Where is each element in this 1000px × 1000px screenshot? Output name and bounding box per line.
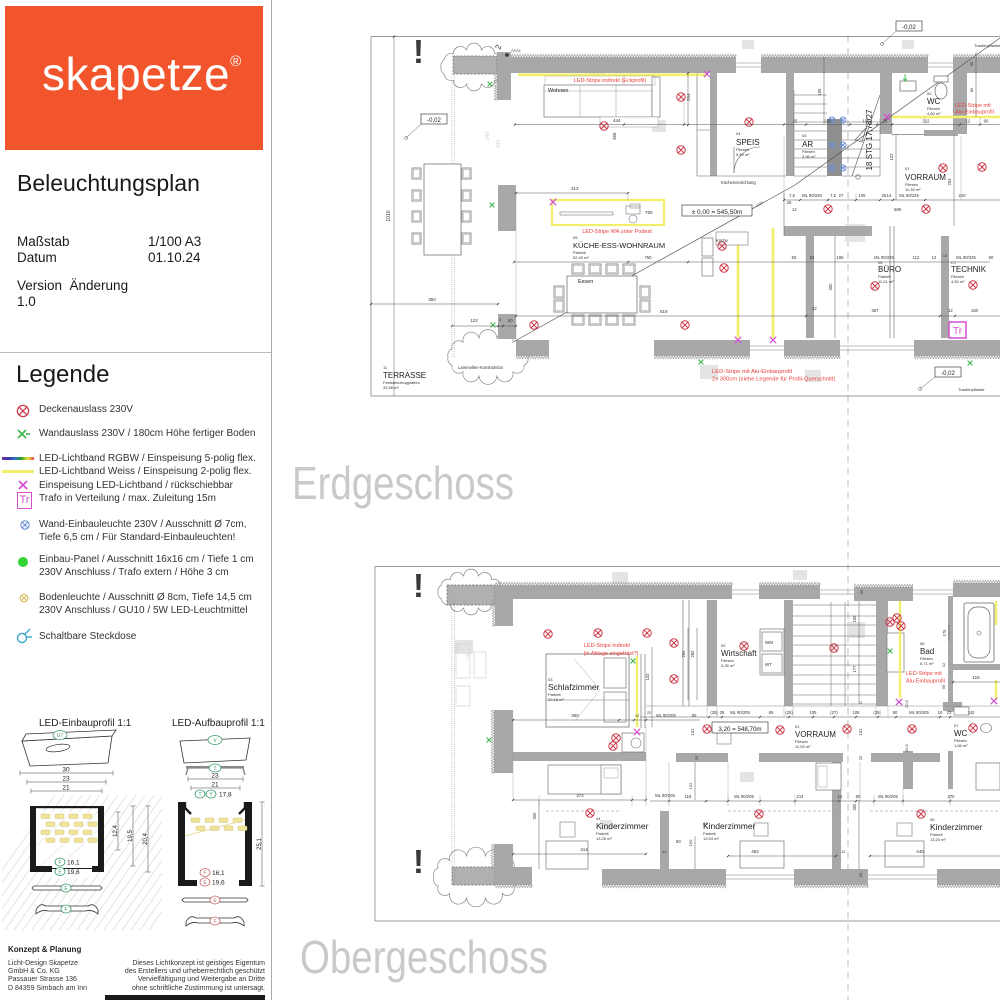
svg-text:04: 04 <box>736 131 741 136</box>
svg-text:25: 25 <box>858 755 863 760</box>
svg-text:Schlafzimmer: Schlafzimmer <box>548 682 600 692</box>
svg-text:!: ! <box>413 843 424 880</box>
svg-text:!: ! <box>413 33 424 70</box>
svg-text:LED-Stripe indirekt (Eckprofil: LED-Stripe indirekt (Eckprofil) <box>574 78 647 84</box>
svg-text:ML 90/225: ML 90/225 <box>956 255 976 260</box>
svg-text:Küche: Küche <box>716 238 729 243</box>
svg-text:(25|: (25| <box>873 710 880 715</box>
svg-text:TECHNIK: TECHNIK <box>951 265 987 274</box>
svg-text:282: 282 <box>690 650 695 658</box>
svg-text:5,35 m²: 5,35 m² <box>721 663 735 668</box>
svg-text:02: 02 <box>721 643 726 648</box>
svg-text:313: 313 <box>571 186 579 191</box>
svg-text:LED-Stripe indirekt: LED-Stripe indirekt <box>584 643 631 649</box>
svg-text:21: 21 <box>62 785 70 792</box>
svg-text:105: 105 <box>817 88 822 96</box>
svg-text:19,6: 19,6 <box>212 880 225 887</box>
svg-text:2: 2 <box>493 43 503 51</box>
svg-text:Kücheneinrichtung: Kücheneinrichtung <box>721 180 756 185</box>
svg-text:06: 06 <box>920 641 925 646</box>
svg-text:Alu-Einbauprofil: Alu-Einbauprofil <box>955 110 994 116</box>
svg-text:(in Ablage eingefräst?): (in Ablage eingefräst?) <box>583 651 638 657</box>
svg-text:12: 12 <box>932 255 937 260</box>
svg-text:12: 12 <box>941 662 946 667</box>
svg-text:482: 482 <box>751 849 759 854</box>
svg-text:Tr: Tr <box>953 326 963 337</box>
svg-text:21: 21 <box>211 782 219 789</box>
svg-text:-0,02: -0,02 <box>902 25 916 31</box>
svg-text:Lammellen-Konstruktion: Lammellen-Konstruktion <box>458 365 504 370</box>
svg-text:14: 14 <box>887 193 892 198</box>
svg-text:12: 12 <box>947 710 952 715</box>
svg-text:10: 10 <box>938 710 943 715</box>
svg-text:WT: WT <box>765 662 772 667</box>
svg-text:02: 02 <box>927 91 932 96</box>
svg-text:240: 240 <box>456 643 462 652</box>
svg-text:7,5: 7,5 <box>830 193 836 198</box>
svg-text:85: 85 <box>969 87 974 92</box>
svg-text:65: 65 <box>769 710 774 715</box>
svg-text:27: 27 <box>839 193 844 198</box>
svg-text:T: T <box>213 766 216 772</box>
svg-text:20,5: 20,5 <box>905 744 909 751</box>
svg-text:60: 60 <box>893 710 898 715</box>
svg-text:350: 350 <box>571 713 579 718</box>
svg-text:300: 300 <box>828 283 833 291</box>
svg-text:7,5: 7,5 <box>789 193 795 198</box>
svg-text:300: 300 <box>852 803 857 811</box>
svg-text:105: 105 <box>859 193 867 198</box>
svg-text:5,49 m²: 5,49 m² <box>736 152 750 157</box>
svg-text:T: T <box>198 792 201 798</box>
svg-text:11: 11 <box>383 365 388 370</box>
svg-text:WM: WM <box>765 640 773 645</box>
svg-text:ML 90/225: ML 90/225 <box>802 193 822 198</box>
svg-text:11,05 m²: 11,05 m² <box>795 744 811 749</box>
svg-text:Erdgeschoss: Erdgeschoss <box>292 457 514 509</box>
svg-text:33,98 m²: 33,98 m² <box>383 385 399 390</box>
svg-text:212: 212 <box>923 119 931 124</box>
svg-text:13: 13 <box>662 849 667 854</box>
svg-text:12,4: 12,4 <box>113 825 119 837</box>
svg-text:LED-Stripe mit: LED-Stripe mit <box>955 103 991 109</box>
svg-text:1,66 m²: 1,66 m² <box>954 743 968 748</box>
svg-text:WC: WC <box>927 97 941 106</box>
svg-text:25: 25 <box>787 200 792 205</box>
svg-text:01: 01 <box>795 724 800 729</box>
svg-text:374: 374 <box>576 793 584 798</box>
svg-text:90: 90 <box>984 119 989 124</box>
svg-text:25: 25 <box>793 119 798 124</box>
svg-text:240: 240 <box>496 139 502 148</box>
svg-text:BÜRO: BÜRO <box>878 265 901 274</box>
svg-text:ML 90/205: ML 90/205 <box>730 710 750 715</box>
svg-text:Obergeschoss: Obergeschoss <box>300 931 548 983</box>
svg-text:ML 90/205: ML 90/205 <box>655 793 675 798</box>
svg-text:22: 22 <box>810 255 815 260</box>
svg-text:SPEIS: SPEIS <box>736 138 760 147</box>
svg-text:142: 142 <box>968 710 976 715</box>
svg-text:12: 12 <box>792 207 797 212</box>
svg-text:Wohnen: Wohnen <box>548 88 568 94</box>
svg-text:414: 414 <box>580 847 588 852</box>
svg-text:18 STG 17,78/27: 18 STG 17,78/27 <box>865 109 874 170</box>
svg-text:50: 50 <box>969 61 974 66</box>
svg-text:Kinderzimmer: Kinderzimmer <box>930 822 983 832</box>
svg-text:19,5: 19,5 <box>128 830 134 842</box>
svg-text:6,71 m²: 6,71 m² <box>920 661 934 666</box>
svg-text:VORRAUM: VORRAUM <box>795 730 836 739</box>
svg-text:115: 115 <box>972 675 980 680</box>
svg-text:750: 750 <box>645 255 653 260</box>
svg-text:Kinderzimmer: Kinderzimmer <box>596 821 649 831</box>
svg-text:253: 253 <box>947 178 952 186</box>
svg-text:23: 23 <box>62 776 70 783</box>
svg-text:300: 300 <box>532 812 537 820</box>
svg-text:175: 175 <box>942 629 947 637</box>
svg-text:25: 25 <box>694 755 699 760</box>
svg-text:214: 214 <box>797 794 805 799</box>
svg-text:AR: AR <box>802 140 813 149</box>
svg-text:U7: U7 <box>57 733 64 739</box>
svg-text:165: 165 <box>837 255 845 260</box>
svg-text:LED-Stripe mit: LED-Stripe mit <box>906 671 942 677</box>
svg-text:11,39 m²: 11,39 m² <box>905 187 921 192</box>
svg-text:12: 12 <box>948 308 953 313</box>
svg-text:LED-Aufbauprofil 1:1: LED-Aufbauprofil 1:1 <box>172 718 265 729</box>
svg-text:160: 160 <box>688 839 693 846</box>
svg-text:122: 122 <box>470 318 478 323</box>
svg-text:4,60 m²: 4,60 m² <box>927 111 941 116</box>
svg-text:13,26 m²: 13,26 m² <box>596 836 612 841</box>
svg-text:350: 350 <box>428 297 436 302</box>
svg-text:150: 150 <box>971 308 979 313</box>
svg-text:122: 122 <box>889 153 894 161</box>
svg-text:3,20 = 548,70m: 3,20 = 548,70m <box>718 726 761 733</box>
svg-text:F: F <box>203 870 206 876</box>
svg-text:Essen: Essen <box>578 279 593 285</box>
svg-text:07: 07 <box>954 723 959 728</box>
svg-text:240: 240 <box>466 651 472 660</box>
svg-text:20,5: 20,5 <box>905 700 909 707</box>
svg-text:22: 22 <box>647 711 651 715</box>
svg-text:25: 25 <box>883 119 888 124</box>
svg-text:11,01 m²: 11,01 m² <box>878 279 894 284</box>
svg-text:ML 90/225: ML 90/225 <box>899 193 919 198</box>
svg-text:210: 210 <box>959 193 967 198</box>
svg-text:50: 50 <box>989 255 994 260</box>
svg-text:750: 750 <box>645 210 653 215</box>
svg-text:-0,02: -0,02 <box>427 118 441 124</box>
svg-text:367: 367 <box>872 308 880 313</box>
svg-text:368: 368 <box>612 132 617 140</box>
svg-text:Alu-Einbauprofil: Alu-Einbauprofil <box>906 679 945 685</box>
svg-text:ML 90/205: ML 90/205 <box>734 794 754 799</box>
svg-text:35: 35 <box>720 710 725 715</box>
svg-text:50: 50 <box>858 872 863 877</box>
svg-text:LED-Stripe mit Alu-Einbauprofi: LED-Stripe mit Alu-Einbauprofil <box>712 369 792 375</box>
svg-text:F: F <box>213 919 216 925</box>
svg-text:112: 112 <box>913 255 920 260</box>
svg-text:60: 60 <box>792 255 797 260</box>
svg-text:589: 589 <box>894 207 902 212</box>
svg-text:177: 177 <box>852 665 857 673</box>
svg-text:ML 90/205: ML 90/205 <box>878 794 898 799</box>
svg-text:LED-Einbauprofil 1:1: LED-Einbauprofil 1:1 <box>39 718 132 729</box>
svg-text:F: F <box>58 860 61 866</box>
svg-text:294: 294 <box>686 93 691 101</box>
svg-text:(25): (25) <box>785 710 793 715</box>
svg-text:95: 95 <box>941 684 946 689</box>
svg-text:50: 50 <box>859 589 864 594</box>
svg-text:819: 819 <box>660 309 668 314</box>
svg-text:!: ! <box>413 567 424 604</box>
svg-text:F: F <box>64 907 67 913</box>
svg-text:Wirtschaft: Wirtschaft <box>721 649 757 658</box>
svg-text:05: 05 <box>573 235 578 240</box>
svg-text:270: 270 <box>948 794 956 799</box>
svg-text:132: 132 <box>645 673 650 681</box>
svg-text:16,1: 16,1 <box>212 870 225 877</box>
svg-text:12: 12 <box>858 700 863 705</box>
svg-text:01: 01 <box>905 166 910 171</box>
svg-text:KÜCHE-ESS-WOHNRAUM: KÜCHE-ESS-WOHNRAUM <box>573 241 665 250</box>
svg-text:264: 264 <box>681 650 686 658</box>
svg-text:12: 12 <box>838 794 843 799</box>
svg-text:20,18 m²: 20,18 m² <box>548 697 564 702</box>
svg-text:Bad: Bad <box>920 647 934 656</box>
svg-text:105: 105 <box>852 615 857 623</box>
svg-text:17,8: 17,8 <box>219 792 232 799</box>
svg-text:60: 60 <box>676 839 681 844</box>
svg-text:12: 12 <box>966 119 971 124</box>
svg-text:LED-Stripe WA unter Podest: LED-Stripe WA unter Podest <box>582 229 652 235</box>
svg-text:19,6: 19,6 <box>67 869 80 876</box>
svg-text:(25|: (25| <box>710 710 717 715</box>
svg-text:50: 50 <box>508 318 513 323</box>
svg-text:Kinderzimmer: Kinderzimmer <box>703 821 756 831</box>
svg-text:52,40 m²: 52,40 m² <box>573 255 589 260</box>
svg-text:13,20 m²: 13,20 m² <box>930 837 946 842</box>
svg-text:118: 118 <box>685 794 692 799</box>
svg-text:TERRASSE: TERRASSE <box>383 371 426 380</box>
svg-text:1010: 1010 <box>386 210 392 221</box>
svg-text:23: 23 <box>211 773 219 780</box>
svg-text:03: 03 <box>802 133 807 138</box>
svg-text:Traufenpflaster: Traufenpflaster <box>958 387 985 392</box>
svg-text:240: 240 <box>485 131 491 140</box>
svg-text:444: 444 <box>613 118 621 123</box>
svg-text:12: 12 <box>635 714 639 718</box>
svg-text:2x 300cm (siehe Legende für Pr: 2x 300cm (siehe Legende für Profil-Quers… <box>712 377 835 383</box>
svg-text:105: 105 <box>853 710 861 715</box>
svg-text:440: 440 <box>916 849 924 854</box>
svg-text:Traufenpflaster: Traufenpflaster <box>974 43 1000 48</box>
svg-text:30: 30 <box>62 767 70 774</box>
svg-text:20,4: 20,4 <box>143 833 149 845</box>
svg-text:12: 12 <box>841 849 846 854</box>
svg-text:22: 22 <box>812 306 817 311</box>
svg-text:152: 152 <box>688 782 693 789</box>
svg-text:13,54 m²: 13,54 m² <box>703 836 719 841</box>
svg-text:131: 131 <box>858 728 863 736</box>
svg-text:ML 90/205: ML 90/205 <box>909 710 929 715</box>
svg-text:VORRAUM: VORRAUM <box>905 173 946 182</box>
svg-text:10: 10 <box>943 254 947 258</box>
svg-text:80: 80 <box>856 794 861 799</box>
svg-text:WC: WC <box>954 729 968 738</box>
svg-text:1193: 1193 <box>755 201 764 208</box>
svg-text:± 0,00 = 545,50m: ± 0,00 = 545,50m <box>692 209 743 216</box>
svg-text:105: 105 <box>825 119 833 124</box>
svg-text:25,1: 25,1 <box>257 838 263 850</box>
svg-text:4,50 m²: 4,50 m² <box>951 279 965 284</box>
svg-text:16,1: 16,1 <box>67 860 80 867</box>
svg-text:131: 131 <box>690 728 695 736</box>
svg-text:-0,02: -0,02 <box>941 371 955 377</box>
svg-text:2,96 m²: 2,96 m² <box>802 154 816 159</box>
svg-text:105: 105 <box>810 710 818 715</box>
svg-text:(27): (27) <box>830 710 838 715</box>
